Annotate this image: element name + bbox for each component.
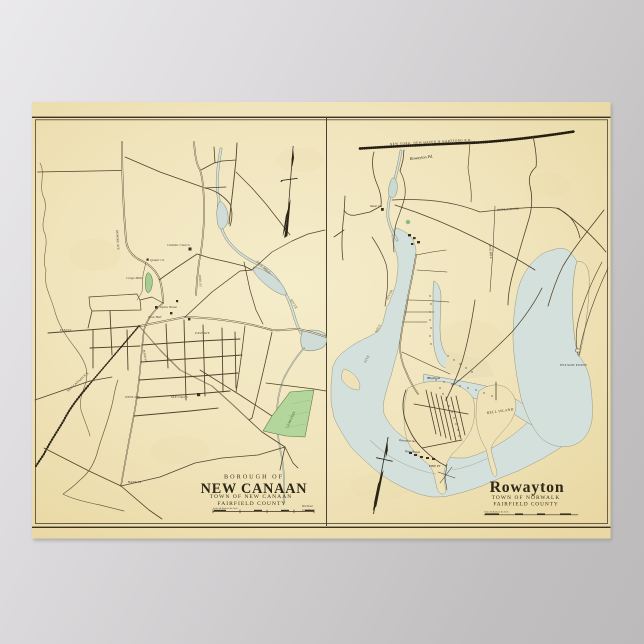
svg-text:Scale 60 Rods to the Inch: Scale 60 Rods to the Inch: [484, 511, 509, 514]
svg-text:TOWN OF NEW CANAAN: TOWN OF NEW CANAAN: [210, 494, 293, 500]
svg-text:EAST AVE: EAST AVE: [195, 331, 210, 335]
svg-text:Stone Ch.: Stone Ch.: [370, 204, 383, 208]
svg-text:FAIRFIELD COUNTY: FAIRFIELD COUNTY: [493, 502, 558, 508]
svg-text:Catholic Church: Catholic Church: [167, 243, 190, 247]
svg-text:Rowayton: Rowayton: [490, 479, 565, 496]
svg-text:BANK ST: BANK ST: [128, 480, 142, 484]
svg-text:WEST AVE: WEST AVE: [125, 395, 140, 399]
svg-text:Town Hall: Town Hall: [148, 315, 161, 319]
svg-text:PARK ST: PARK ST: [198, 275, 202, 287]
svg-text:Mill Pond: Mill Pond: [301, 505, 313, 508]
svg-text:ELM ST: ELM ST: [60, 328, 71, 332]
svg-text:PINE PT: PINE PT: [429, 464, 441, 468]
svg-text:Scale 40 Rods to the Inch: Scale 40 Rods to the Inch: [213, 507, 238, 510]
svg-text:Highland: Highland: [427, 376, 440, 380]
svg-text:WILSON POINT: WILSON POINT: [560, 363, 587, 367]
svg-text:TOWN OF NORWALK: TOWN OF NORWALK: [492, 495, 561, 501]
svg-text:Quaker Ch.: Quaker Ch.: [150, 258, 165, 262]
svg-text:BOROUGH OF: BOROUGH OF: [224, 474, 284, 481]
svg-text:M.E.Church: M.E.Church: [170, 395, 188, 399]
svg-text:Congs Mills: Congs Mills: [126, 276, 143, 280]
svg-text:Opera House: Opera House: [160, 305, 178, 309]
